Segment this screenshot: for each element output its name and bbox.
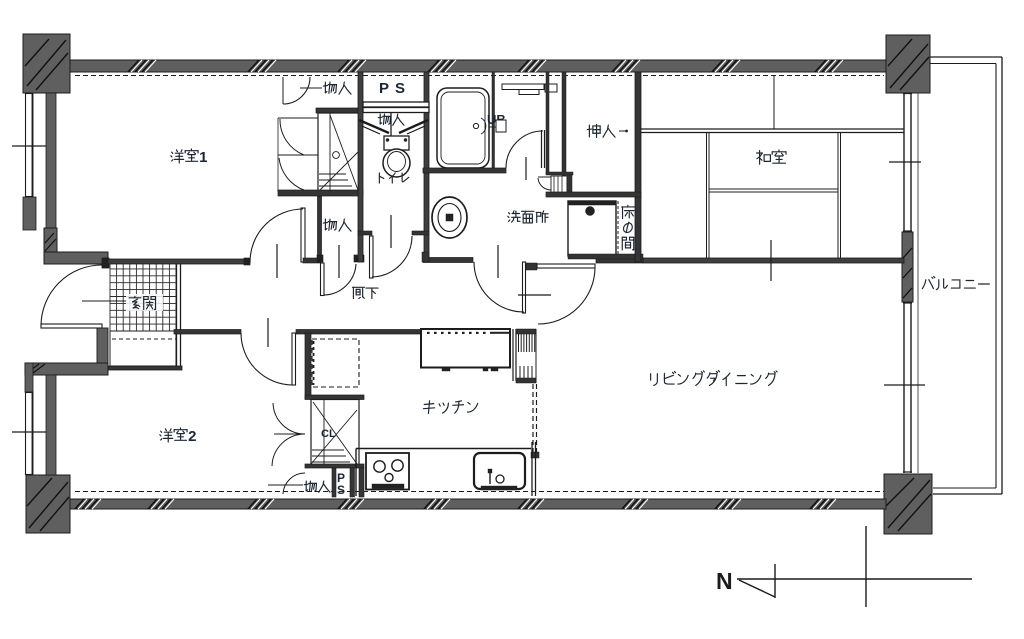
svg-text:2: 2 xyxy=(188,428,196,445)
svg-text:N: N xyxy=(716,568,733,594)
svg-text:1: 1 xyxy=(199,149,207,166)
svg-text:CL: CL xyxy=(321,428,336,440)
svg-text:PS: PS xyxy=(379,80,411,97)
svg-text:S: S xyxy=(337,483,345,497)
